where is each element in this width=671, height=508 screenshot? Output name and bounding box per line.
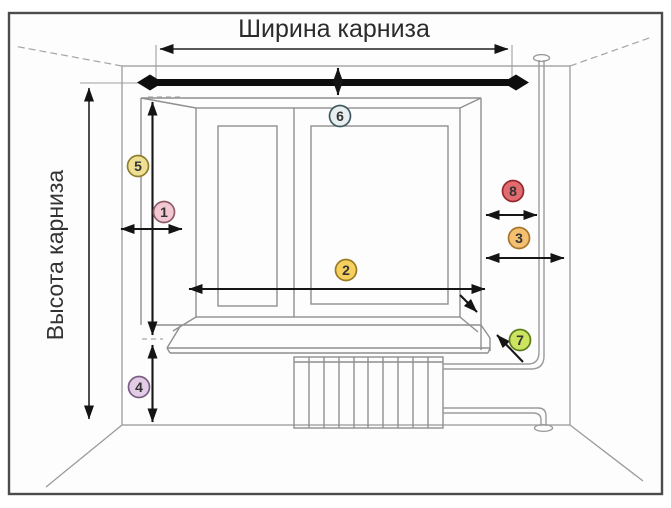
marker-3: 3 (509, 228, 530, 249)
marker-6: 6 (330, 106, 351, 127)
marker-number-8: 8 (509, 183, 517, 199)
marker-number-4: 4 (135, 379, 143, 395)
marker-2: 2 (336, 260, 357, 281)
marker-4: 4 (129, 377, 150, 398)
cornice-height-label: Высота карниза (42, 170, 68, 341)
cornice-width-label: Ширина карниза (238, 15, 430, 43)
marker-number-1: 1 (160, 204, 168, 220)
marker-number-2: 2 (342, 262, 350, 278)
marker-number-7: 7 (516, 332, 524, 348)
marker-8: 8 (503, 181, 524, 202)
marker-number-3: 3 (515, 230, 523, 246)
diagram-canvas: 12345678 Ширина карниза Высота карниза (0, 0, 671, 508)
marker-number-6: 6 (336, 108, 344, 124)
marker-7: 7 (510, 330, 531, 351)
cornice-measurement-diagram: 12345678 Ширина карниза Высота карниза (0, 0, 671, 508)
marker-1: 1 (154, 202, 175, 223)
marker-number-5: 5 (134, 158, 142, 174)
marker-5: 5 (128, 156, 149, 177)
